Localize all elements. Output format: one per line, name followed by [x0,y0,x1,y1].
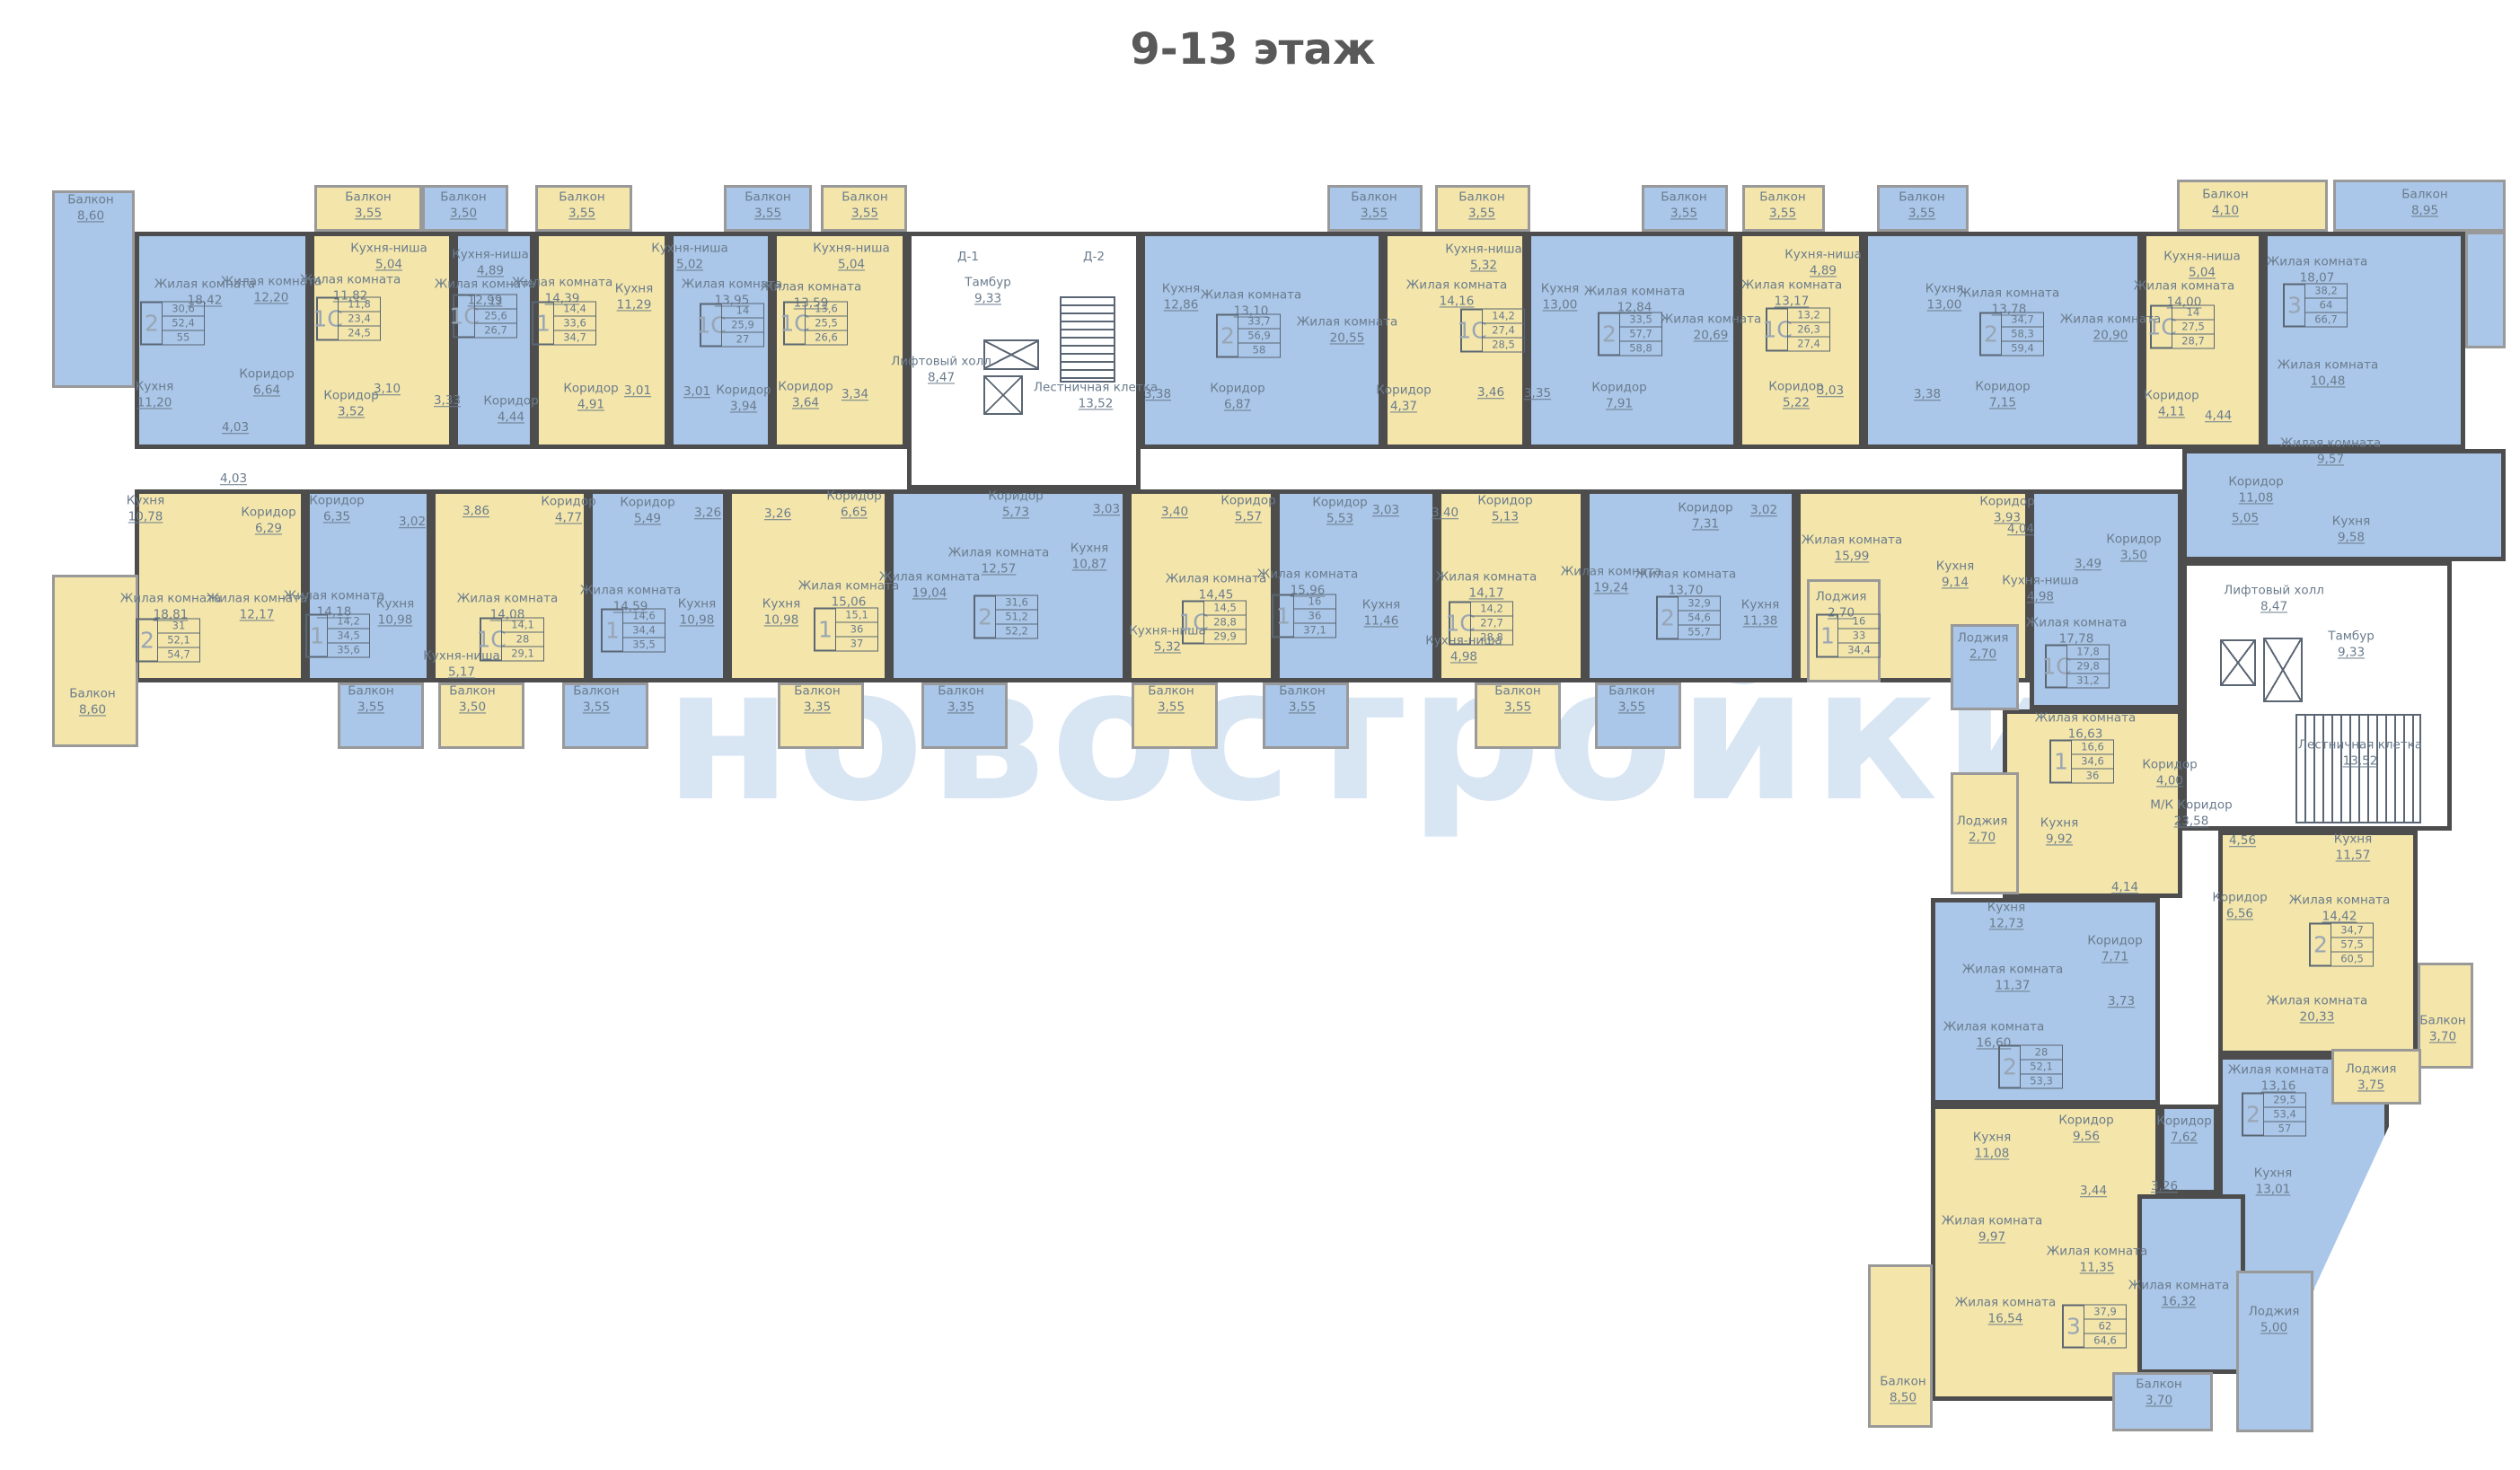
room-label: Жилая комната14,45 [1166,571,1266,603]
room-name: Коридор [2212,890,2267,906]
room-label: Жилая комната14,16 [1406,277,1507,309]
apartment-rooms-count: 1С [453,295,474,339]
room-area: 6,29 [241,521,295,537]
room-name: Балкон [348,683,393,700]
apartment-type-badge: 114,234,535,6 [305,614,370,658]
area-value: 58 [1238,344,1281,358]
apartment-type-badge: 1С14,227,728,8 [1449,602,1513,646]
apartment-areas: 14,12829,1 [501,618,544,662]
room-label: Коридор3,94 [716,383,771,414]
room-area: 12,57 [948,561,1049,577]
room-area: 3,40 [1432,506,1458,522]
area-value: 28,8 [1203,616,1247,630]
room-name: Балкон [1608,683,1654,700]
room-area: 12,73 [1987,916,2026,932]
area-label: 3,38 [1144,387,1171,403]
area-value: 34,7 [2331,923,2374,938]
room-name: Лестничная клетка [1034,380,1158,396]
room-name: Жилая комната [1962,962,2063,978]
room-area: 6,56 [2212,906,2267,922]
room-name: Коридор [1210,381,1264,397]
room-name: Лоджия [1816,589,1867,605]
area-label: 3,26 [694,506,721,522]
room-name: Тамбур [2328,629,2375,645]
room-label: Коридор4,91 [563,381,618,412]
area-label: 3,73 [2108,994,2135,1010]
room-area: 3,44 [2080,1184,2107,1200]
area-label: 3,49 [2075,557,2101,573]
room-name: Кухня [136,379,174,395]
apartment-type-badge: 337,96264,6 [2062,1305,2127,1349]
room-label: Коридор6,87 [1210,381,1264,412]
area-value: 17,8 [2066,645,2110,660]
area-value: 34,4 [622,624,665,638]
room-area: 3,55 [1899,206,1944,222]
apartment-rooms-count: 1С [1766,308,1787,352]
area-value: 52,2 [995,625,1038,639]
room-area: 3,38 [1144,387,1171,403]
area-value: 29,1 [501,647,544,662]
room-name: Лоджия [1957,814,2008,830]
apartment-rooms-count: 2 [1998,1045,2020,1089]
room-name: Жилая комната [1436,569,1537,585]
room-area: 13,52 [1034,396,1158,412]
room-name: Жилая комната [1942,1213,2042,1229]
apartment-areas: 30,652,455 [162,302,205,346]
area-value: 57,7 [1619,328,1662,342]
area-value: 57,5 [2331,938,2374,953]
room-label: Балкон3,55 [1494,683,1540,715]
room-area: 2,70 [1958,647,2009,663]
room-name: Балкон [440,189,486,206]
room-area: 3,55 [1351,206,1397,222]
area-value: 25,5 [805,317,848,331]
apartment-rooms-count: 2 [1598,312,1619,356]
room-label: Жилая комната20,69 [1661,312,1761,343]
area-label: 3,35 [1524,386,1551,402]
room-label: Кухня9,14 [1936,559,1975,590]
room-label: Лоджия3,75 [2346,1061,2397,1093]
room-area: 6,87 [1210,397,1264,413]
area-value: 34,5 [327,629,370,644]
area-value: 27,5 [2172,321,2215,335]
area-value: 31,2 [2066,674,2110,689]
room-name: Балкон [1759,189,1805,206]
room-area: 3,55 [345,206,391,222]
area-value: 16 [1293,594,1336,610]
room-name: Жилая комната [1802,533,1902,549]
room-name: Коридор [620,495,674,511]
room-area: 5,00 [2249,1320,2300,1336]
area-value: 14,4 [553,302,596,317]
area-value: 27,7 [1470,617,1513,631]
room-name: М/К Коридор [2150,797,2232,814]
room-name: Балкон [559,189,604,206]
room-label: Балкон8,60 [69,686,115,717]
room-label: Коридор5,73 [988,489,1043,520]
apartment-areas: 17,829,831,2 [2066,645,2110,689]
room-name: Жилая комната [300,272,401,288]
area-value: 26,7 [474,324,517,339]
room-name: Балкон [1494,683,1540,700]
room-label: Кухня-ниша4,89 [1784,247,1862,278]
room-label: Коридор3,50 [2106,532,2161,563]
room-label: Кухня10,78 [127,493,165,524]
area-label: 3,01 [624,383,651,400]
room-area: 10,98 [762,612,801,629]
room-name: Жилая комната [2280,436,2381,452]
room-area: 3,75 [2346,1078,2397,1094]
room-label: Жилая комната10,48 [2278,357,2378,389]
room-name: Кухня [1987,900,2026,916]
room-name: Кухня [762,596,801,612]
room-area: 3,35 [1524,386,1551,402]
room-area: 2,70 [1957,830,2008,846]
room-area: 11,08 [1973,1146,2012,1162]
room-label: Кухня11,38 [1741,597,1780,629]
room-area: 3,52 [323,404,378,420]
room-label: Балкон3,70 [2419,1013,2465,1044]
area-label: 3,34 [841,387,868,403]
area-value: 28,7 [2172,335,2215,349]
room-label: Коридор9,56 [2058,1113,2113,1144]
room-name: Жилая комната [457,591,558,607]
room-area: 3,55 [1608,700,1654,716]
room-label: Кухня11,29 [615,281,654,312]
room-label: Жилая комната11,35 [2047,1244,2147,1275]
room-area: 5,05 [2232,511,2259,527]
room-name: Жилая комната [2035,710,2136,726]
room-name: Жилая комната [2047,1244,2147,1260]
apartment-areas: 1427,528,7 [2172,305,2215,349]
apartment-rooms-count: 2 [1216,314,1238,358]
area-value: 28 [501,633,544,647]
room-name: Коридор [2106,532,2161,548]
room-name: Кухня-ниша [2163,249,2241,265]
area-value: 52,1 [157,634,200,648]
area-label: 3,40 [1161,505,1188,521]
area-value: 15,1 [835,608,878,623]
room-area: 3,03 [1372,503,1399,519]
room-label: Жилая комната12,84 [1584,284,1685,315]
apartment-areas: 163334,4 [1837,614,1881,658]
room-name: Д-2 [1083,250,1105,266]
room-name: Балкон [1458,189,1504,206]
apartment-rooms-count: 3 [2062,1305,2084,1349]
room-area: 10,78 [127,509,165,525]
room-label: Жилая комната20,33 [2267,993,2367,1025]
room-label: Коридор5,22 [1768,379,1823,410]
room-name: Коридор [1768,379,1823,395]
room-name: Кухня [2332,514,2371,530]
area-label: 3,26 [2151,1179,2178,1195]
apartment-type-badge: 1С1325,626,7 [453,295,517,339]
room-area: 13,52 [2298,753,2422,770]
area-value: 34,7 [553,331,596,346]
room-area: 4,91 [563,397,618,413]
area-label: 3,01 [683,384,710,401]
room-area: 4,98 [1425,649,1502,665]
apartment-type-badge: 23152,154,7 [136,619,200,663]
area-value: 33,6 [553,317,596,331]
room-label: Балкон3,55 [559,189,604,221]
area-value: 28 [2020,1045,2063,1061]
room-area: 10,48 [2278,374,2378,390]
room-name: Кухня [1936,559,1975,575]
room-area: 20,55 [1297,330,1397,347]
room-name: Коридор [241,505,295,521]
room-name: Кухня [2334,832,2373,848]
room-name: Жилая комната [284,588,384,604]
apartment-type-badge: 338,26466,7 [2283,284,2348,328]
room-label: Балкон3,55 [1279,683,1325,715]
apartment-areas: 1425,927 [721,304,764,348]
area-value: 53,4 [2263,1108,2306,1122]
room-name: Кухня [127,493,165,509]
room-label: Кухня-ниша5,04 [813,241,890,272]
room-name: Коридор [1312,495,1367,511]
room-area: 15,99 [1802,549,1902,565]
apartment-areas: 14,634,435,5 [622,609,665,653]
apartment-areas: 14,227,428,5 [1482,309,1525,353]
room-label: Коридор3,52 [323,388,378,419]
apartment-type-badge: 22852,153,3 [1998,1045,2063,1089]
apartment-type-badge: 232,954,655,7 [1656,596,1721,640]
room-name: Жилая комната [1584,284,1685,300]
room-area: 11,38 [1741,613,1780,629]
room-area: 10,98 [678,612,717,629]
room-label: Коридор7,15 [1975,379,2030,410]
room-name: Жилая комната [580,583,681,599]
apartment-type-badge: 230,652,455 [140,302,205,346]
room-name: Коридор [1220,493,1275,509]
room-area: 11,46 [1362,613,1401,629]
room-area: 7,62 [2156,1130,2211,1146]
apartment-areas: 34,758,359,4 [2001,312,2044,356]
room-area: 3,46 [1477,385,1504,401]
room-area: 14,16 [1406,294,1507,310]
room-label: Балкон3,55 [1899,189,1944,221]
apartment-rooms-count: 1С [316,297,338,341]
apartment-rooms-count: 1С [783,302,805,346]
area-value: 52,1 [2020,1061,2063,1075]
room-name: Кухня [1162,281,1201,297]
room-label: Кухня-ниша5,02 [651,241,728,272]
apartment-type-badge: 1С14,227,428,5 [1460,309,1525,353]
room-area: 4,44 [483,409,538,426]
room-area: 11,29 [615,297,654,313]
area-label: 3,10 [374,382,401,398]
area-value: 23,4 [338,312,381,327]
room-label: Жилая комната14,17 [1436,569,1537,601]
room-area: 8,60 [67,208,113,224]
room-area: 4,03 [222,420,249,436]
apartment-areas: 32,954,655,7 [1678,596,1721,640]
area-value: 60,5 [2331,953,2374,967]
apartment-type-badge: 1С14,528,829,9 [1182,601,1247,645]
room-area: 5,53 [1312,511,1367,527]
room-label: Коридор4,37 [1376,383,1431,414]
area-value: 56,9 [1238,330,1281,344]
room-label: Жилая комната16,32 [2128,1278,2229,1309]
room-name: Балкон [1279,683,1325,700]
room-label: Балкон4,10 [2202,187,2248,218]
area-value: 34,7 [2001,312,2044,328]
room-label: Жилая комната11,37 [1962,962,2063,993]
room-area: 3,10 [374,382,401,398]
room-name: Балкон [2419,1013,2465,1029]
room-area: 20,69 [1661,328,1761,344]
area-label: 3,26 [764,506,791,523]
room-name: Жилая комната [1741,277,1842,294]
room-name: Жилая комната [512,275,612,291]
apartment-rooms-count: 1С [1460,309,1482,353]
room-name: Кухня-ниша [651,241,728,257]
area-label: 3,33 [434,393,461,409]
room-name: Коридор [2058,1113,2113,1129]
room-name: Жилая комната [2278,357,2378,374]
area-value: 33 [1837,629,1881,644]
room-name: Кухня [1541,281,1580,297]
room-area: 3,49 [2075,557,2101,573]
room-label: Коридор7,71 [2087,933,2142,964]
area-value: 14 [2172,305,2215,321]
room-area: 13,01 [2254,1182,2293,1198]
room-label: Коридор4,00 [2142,757,2197,788]
room-name: Жилая комната [1201,287,1301,304]
room-area: 9,57 [2280,452,2381,468]
room-name: Коридор [2228,474,2283,490]
room-label: Коридор3,64 [778,379,833,410]
area-label: 4,03 [220,471,247,488]
room-area: 4,44 [2205,409,2232,425]
room-area: 5,73 [988,505,1043,521]
room-area: 13,00 [1541,297,1580,313]
room-area: 3,35 [794,700,840,716]
room-name: Кухня-ниша [1784,247,1862,263]
room-label: Кухня11,20 [136,379,174,410]
room-name: Балкон [1661,189,1706,206]
apartment-areas: 33,756,958 [1238,314,1281,358]
area-value: 26,3 [1787,323,1830,338]
apartment-rooms-count: 1 [814,608,835,652]
room-label: Жилая комната9,97 [1942,1213,2042,1245]
apartment-areas: 14,433,634,7 [553,302,596,346]
room-area: 6,35 [309,509,364,525]
room-area: 3,50 [449,700,495,716]
room-area: 11,20 [136,395,174,411]
room-name: Кухня-ниша [1445,242,1522,258]
room-label: Коридор7,91 [1591,380,1646,411]
room-area: 9,14 [1936,575,1975,591]
area-value: 58,8 [1619,342,1662,356]
elevator-shaft [983,339,1039,370]
apartment-areas: 14,227,728,8 [1470,602,1513,646]
area-value: 16 [1837,614,1881,629]
area-value: 13 [474,295,517,310]
room-label: Коридор11,08 [2228,474,2283,506]
area-label: 5,05 [2232,511,2259,527]
balcony [2177,180,2328,232]
area-value: 14,6 [622,609,665,624]
room-label: Кухня11,57 [2334,832,2373,863]
room-label: Жилая комната15,99 [1802,533,1902,564]
room-area: 3,94 [716,399,771,415]
area-value: 29,5 [2263,1093,2306,1108]
room-label: Балкон3,55 [573,683,619,715]
room-label: Кухня10,87 [1071,541,1109,572]
area-label: 4,44 [2205,409,2232,425]
room-label: Балкон8,95 [2401,187,2447,218]
room-label: Коридор6,64 [239,366,294,398]
room-name: Коридор [1376,383,1431,399]
room-area: 9,33 [965,291,1011,307]
room-area: 5,04 [813,257,890,273]
room-name: Коридор [988,489,1043,505]
apartment-rooms-count: 1С [2150,305,2172,349]
area-value: 64 [2304,299,2348,313]
room-area: 7,31 [1678,516,1732,533]
area-value: 14 [721,304,764,319]
area-value: 32,9 [1678,596,1721,612]
apartment-areas: 38,26466,7 [2304,284,2348,328]
room-name: Кухня-ниша [2002,573,2079,589]
room-area: 5,49 [620,511,674,527]
area-label: 4,04 [2007,522,2034,538]
area-value: 11,8 [338,297,381,312]
apartment-rooms-count: 2 [136,619,157,663]
apartment-type-badge: 1С17,829,831,2 [2045,645,2110,689]
room-area: 3,55 [1494,700,1540,716]
room-name: Коридор [1975,379,2030,395]
room-area: 20,33 [2267,1009,2367,1025]
apartment-rooms-count: 1 [305,614,327,658]
room-label: Жилая комната17,78 [2026,615,2127,647]
apartment-rooms-count: 1С [1182,601,1203,645]
area-value: 25,9 [721,319,764,333]
area-value: 51,2 [995,611,1038,625]
area-value: 38,2 [2304,284,2348,299]
room-area: 5,57 [1220,509,1275,525]
apartment-rooms-count: 2 [2309,923,2331,967]
apartment-areas: 13,226,327,4 [1787,308,1830,352]
apartment-type-badge: 234,758,359,4 [1979,312,2044,356]
room-label: Коридор4,77 [541,494,595,525]
area-label: 3,86 [463,504,489,520]
room-name: Балкон [1351,189,1397,206]
room-label: Жилая комната12,57 [948,545,1049,577]
room-name: Жилая комната [1661,312,1761,328]
area-value: 66,7 [2304,313,2348,328]
area-value: 24,5 [338,327,381,341]
area-value: 27 [721,333,764,348]
room-name: Балкон [2202,187,2248,203]
room-name: Балкон [745,189,790,206]
area-value: 14,1 [501,618,544,633]
room-label: Д-2 [1083,250,1105,266]
room-name: Балкон [938,683,983,700]
room-name: Балкон [345,189,391,206]
apartment-type-badge: 234,757,560,5 [2309,923,2374,967]
room-area: 3,50 [440,206,486,222]
room-area: 11,35 [2047,1260,2147,1276]
room-area: 19,04 [879,585,980,602]
room-label: Балкон3,35 [938,683,983,715]
room-area: 4,37 [1376,399,1431,415]
room-area: 3,50 [2106,548,2161,564]
room-label: Жилая комната13,16 [2228,1062,2329,1094]
apartment-rooms-count: 2 [1656,596,1678,640]
